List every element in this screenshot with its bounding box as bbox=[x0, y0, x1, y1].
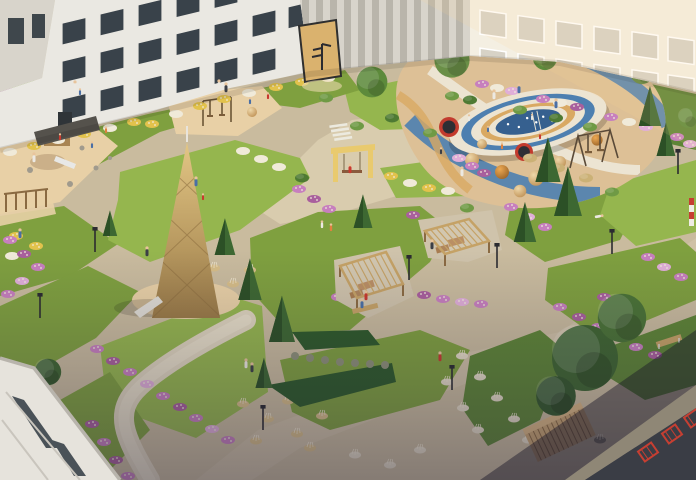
courtyard-render bbox=[0, 0, 696, 480]
scene-canvas bbox=[0, 0, 696, 480]
climb-dome bbox=[247, 107, 257, 117]
trampoline bbox=[439, 117, 459, 137]
striped-pole bbox=[689, 198, 694, 226]
swing-bench bbox=[342, 170, 362, 173]
